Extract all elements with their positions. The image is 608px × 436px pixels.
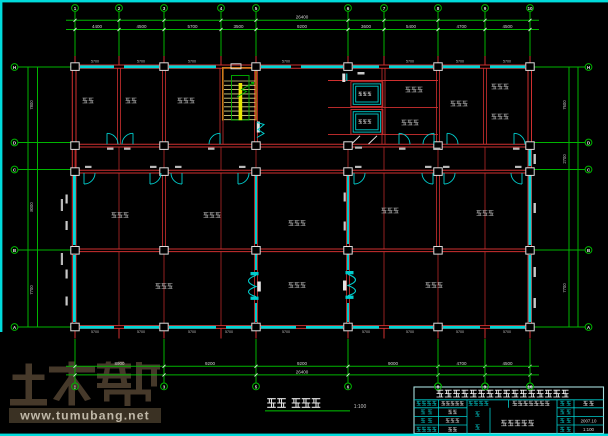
svg-text:5700: 5700 [91, 59, 99, 63]
svg-text:5700: 5700 [406, 330, 414, 334]
svg-text:6: 6 [347, 6, 350, 11]
svg-text:2: 2 [118, 6, 121, 11]
svg-text:5: 5 [255, 6, 258, 11]
svg-text:2700: 2700 [562, 154, 567, 164]
svg-text:5700: 5700 [503, 59, 511, 63]
svg-text:7600: 7600 [562, 100, 567, 110]
svg-text:5700: 5700 [362, 330, 370, 334]
svg-text:1:100: 1:100 [583, 427, 595, 432]
svg-text:9200: 9200 [297, 24, 308, 29]
svg-text:3: 3 [163, 6, 166, 11]
svg-text:www.tumubang.net: www.tumubang.net [19, 409, 150, 423]
svg-text:5700: 5700 [282, 330, 290, 334]
svg-text:5700: 5700 [503, 330, 511, 334]
svg-text:5700: 5700 [91, 330, 99, 334]
svg-text:3500: 3500 [233, 24, 244, 29]
svg-text:7700: 7700 [562, 283, 567, 293]
svg-text:10: 10 [527, 6, 533, 11]
svg-text:26400: 26400 [296, 14, 309, 19]
svg-text:8: 8 [437, 6, 440, 11]
svg-text:7700: 7700 [29, 285, 34, 295]
svg-text:5400: 5400 [406, 24, 417, 29]
svg-text:4700: 4700 [456, 361, 467, 366]
svg-text:4500: 4500 [136, 24, 147, 29]
svg-text:1:100: 1:100 [354, 404, 367, 410]
svg-text:9: 9 [484, 6, 487, 11]
svg-text:10: 10 [528, 384, 533, 389]
svg-text:5700: 5700 [456, 59, 464, 63]
svg-text:5700: 5700 [188, 330, 196, 334]
svg-text:4500: 4500 [502, 24, 513, 29]
svg-text:9200: 9200 [205, 361, 216, 366]
svg-text:9200: 9200 [297, 361, 308, 366]
svg-text:2007.10: 2007.10 [581, 418, 597, 423]
svg-text:8000: 8000 [29, 202, 34, 212]
svg-text:7800: 7800 [29, 100, 34, 110]
svg-text:7: 7 [383, 6, 386, 11]
svg-text:5700: 5700 [137, 59, 145, 63]
svg-text:5700: 5700 [188, 59, 196, 63]
svg-text:3600: 3600 [361, 24, 372, 29]
svg-text:4500: 4500 [502, 361, 513, 366]
svg-text:26400: 26400 [296, 370, 309, 375]
svg-text:5700: 5700 [456, 330, 464, 334]
svg-text:1: 1 [74, 6, 77, 11]
svg-text:9000: 9000 [388, 361, 399, 366]
svg-text:5700: 5700 [137, 330, 145, 334]
svg-text:4700: 4700 [456, 24, 467, 29]
svg-text:5700: 5700 [225, 330, 233, 334]
svg-text:4: 4 [220, 6, 223, 11]
svg-text:4400: 4400 [92, 24, 103, 29]
svg-text:5700: 5700 [282, 59, 290, 63]
svg-text:5700: 5700 [187, 24, 198, 29]
svg-text:5700: 5700 [406, 59, 414, 63]
svg-text:8900: 8900 [114, 361, 125, 366]
